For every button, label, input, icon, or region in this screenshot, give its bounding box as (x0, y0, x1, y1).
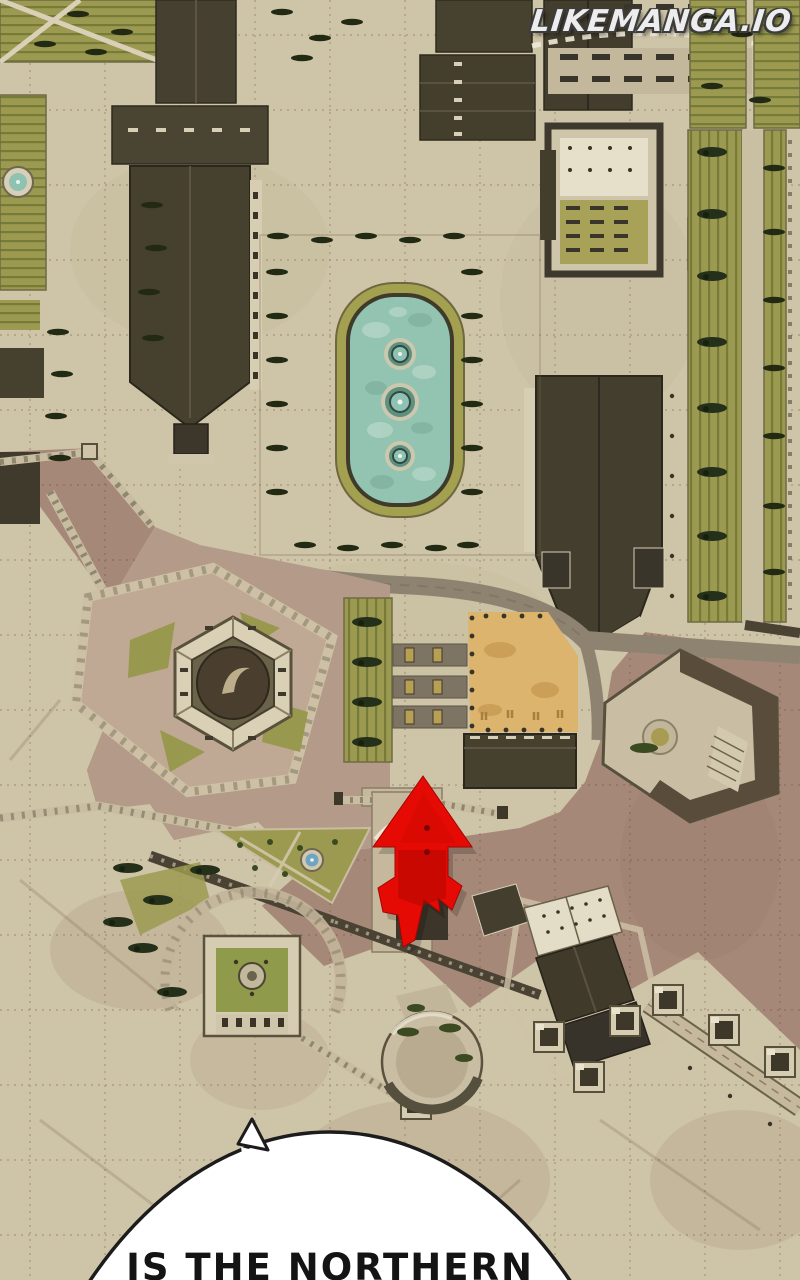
palace-map-illustration (0, 0, 800, 1280)
site-watermark: LIKEMANGA.IO (529, 4, 793, 39)
tower (634, 548, 664, 588)
pool-fountain (385, 441, 415, 471)
speech-bubble-text: IS THE NORTHERN (120, 1246, 540, 1280)
webtoon-page: LIKEMANGA.IO IS THE NORTHERN (0, 0, 800, 1280)
gate-stripes (393, 644, 467, 728)
pool-fountain (384, 338, 416, 370)
gatehouse-tower (610, 1006, 640, 1036)
gatehouse-tower (574, 1062, 604, 1092)
causeway-tower (653, 985, 683, 1015)
tree-icon (630, 743, 658, 753)
stable-roof (464, 734, 576, 788)
building-roof (436, 0, 532, 52)
gatehouse-tower (534, 1022, 564, 1052)
tower (542, 552, 570, 588)
pool-fountain (381, 383, 419, 421)
gallery-roof (0, 348, 44, 398)
causeway-tower (765, 1047, 795, 1077)
building-roof (112, 106, 268, 164)
causeway-tower (709, 1015, 739, 1045)
tower (174, 424, 208, 454)
building-roof (420, 55, 535, 140)
